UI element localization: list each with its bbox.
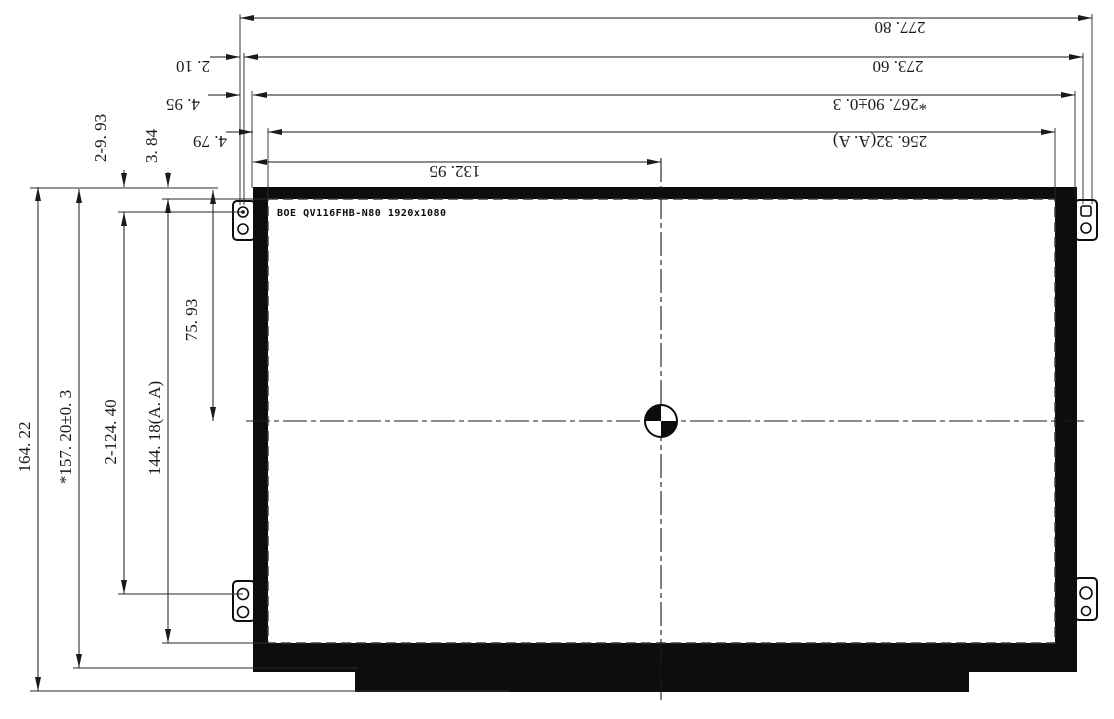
top-extension-lines (240, 14, 1092, 205)
left-dimension-lines: 164. 22 *157. 20±0. 3 2-124. 40 2-9. 93 … (15, 114, 213, 691)
dim-active-width: 256. 32(A. A) (833, 132, 927, 151)
lcd-module-outline-drawing: BOE QV116FHB-N80 1920x1080 277. 80 (0, 0, 1114, 719)
panel-model-label: BOE QV116FHB-N80 1920x1080 (277, 208, 447, 219)
dim-hole-offset: 2-9. 93 (91, 114, 110, 162)
dim-edge-top: 3. 84 (142, 129, 161, 164)
dim-outline-height: *157. 20±0. 3 (56, 390, 75, 484)
dim-aa-edge-left: 4. 79 (193, 132, 227, 151)
mount-tab-top-right (1075, 200, 1097, 240)
dim-half-height: 75. 93 (182, 299, 201, 342)
dim-overall-width: 277. 80 (875, 18, 926, 37)
dim-mounting-width: 273. 60 (873, 57, 924, 76)
dim-half-width: 132. 95 (430, 162, 481, 181)
bottom-board-protrusion (355, 672, 969, 692)
dim-outline-width: *267. 90±0. 3 (833, 95, 927, 114)
dim-active-height: 144. 18(A. A) (145, 381, 164, 475)
drawing-canvas: BOE QV116FHB-N80 1920x1080 277. 80 (0, 0, 1114, 719)
center-mark (645, 405, 677, 437)
mount-tab-bottom-right (1075, 578, 1097, 620)
dim-hole-pitch: 2-124. 40 (101, 399, 120, 464)
dim-side-gap: 2. 10 (176, 57, 210, 76)
mount-tab-top-left (233, 201, 255, 240)
top-dimension-lines: 277. 80 273. 60 2. 10 *267. 90±0. 3 4. 9… (166, 18, 1092, 181)
panel-body: BOE QV116FHB-N80 1920x1080 (253, 187, 1077, 692)
dim-edge-left: 4. 95 (166, 95, 200, 114)
dim-overall-height: 164. 22 (15, 422, 34, 473)
mount-tab-bottom-left (233, 581, 255, 621)
